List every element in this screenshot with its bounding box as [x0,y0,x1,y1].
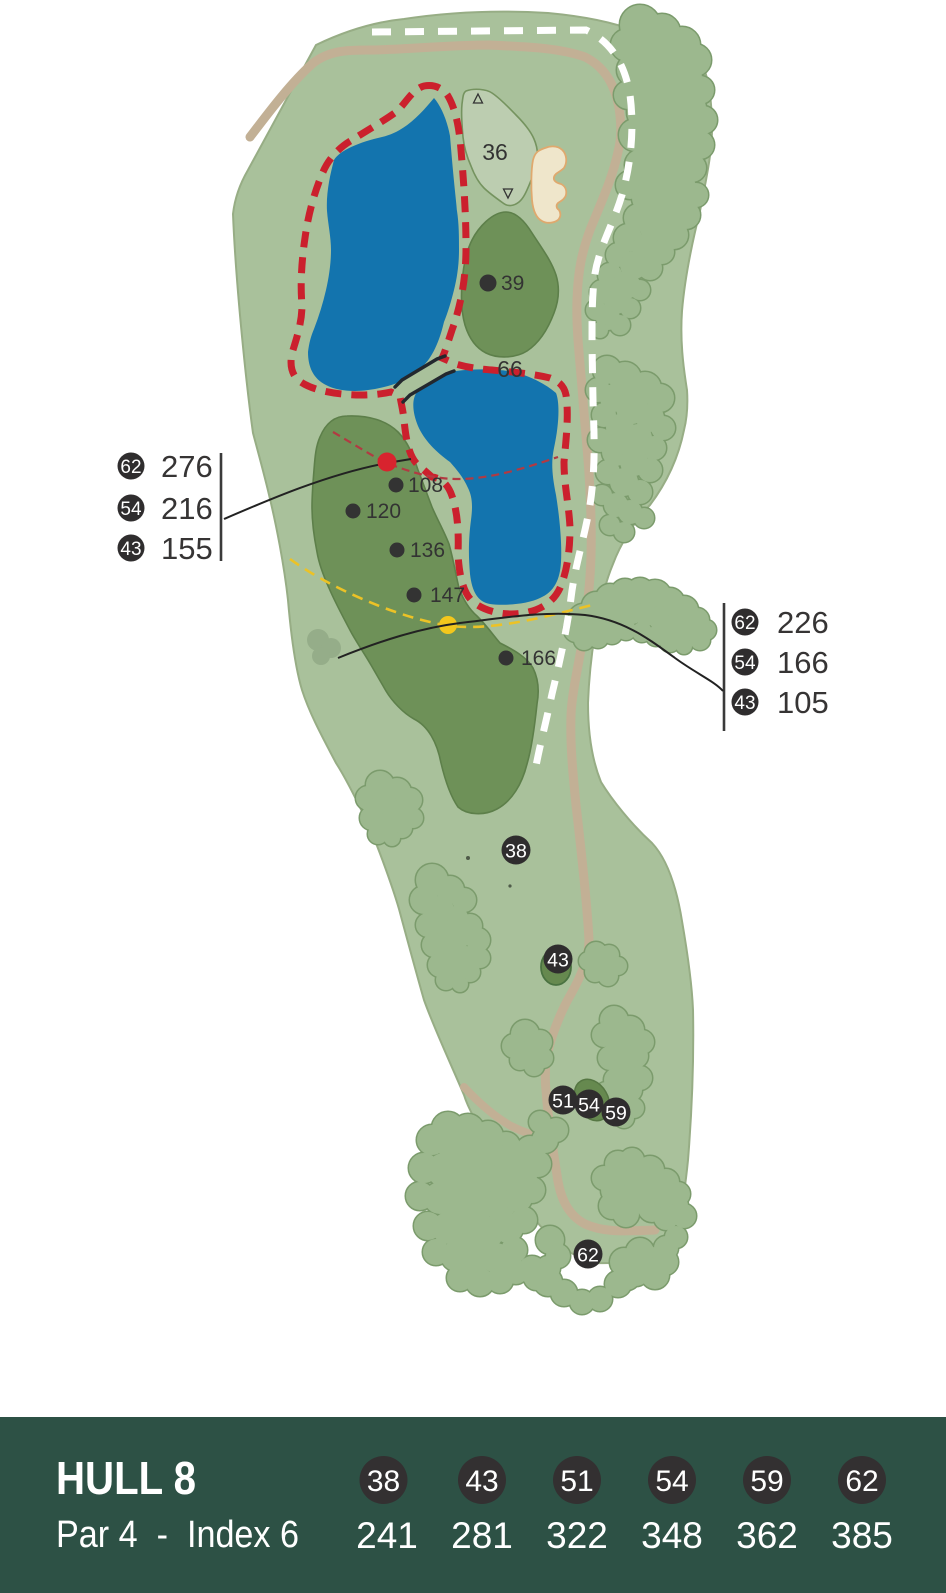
svg-text:66: 66 [497,356,523,382]
svg-text:226: 226 [777,605,829,640]
svg-text:155: 155 [161,531,213,566]
svg-text:120: 120 [366,500,401,523]
svg-text:276: 276 [161,449,213,484]
svg-text:136: 136 [410,539,445,562]
svg-text:62: 62 [577,1245,599,1267]
svg-text:59: 59 [750,1465,783,1498]
svg-text:54: 54 [120,499,142,520]
svg-text:54: 54 [578,1095,600,1117]
svg-text:62: 62 [845,1465,878,1498]
svg-text:348: 348 [641,1515,703,1556]
svg-text:36: 36 [482,139,508,165]
svg-text:216: 216 [161,491,213,526]
svg-text:38: 38 [505,841,527,863]
svg-text:Par 4 - Index 6: Par 4 - Index 6 [56,1514,299,1556]
svg-text:59: 59 [605,1103,627,1125]
svg-text:241: 241 [356,1515,418,1556]
svg-text:43: 43 [734,693,755,714]
svg-text:62: 62 [734,613,755,634]
svg-text:147: 147 [430,584,465,607]
svg-text:54: 54 [734,653,756,674]
svg-text:43: 43 [465,1465,498,1498]
svg-text:281: 281 [451,1515,513,1556]
svg-text:108: 108 [408,474,443,497]
svg-text:51: 51 [560,1465,593,1498]
svg-text:43: 43 [547,950,569,972]
svg-text:105: 105 [777,685,829,720]
svg-text:HULL 8: HULL 8 [56,1452,196,1504]
svg-text:166: 166 [521,647,556,670]
svg-text:62: 62 [120,457,141,478]
svg-text:39: 39 [501,272,524,295]
svg-text:385: 385 [831,1515,893,1556]
svg-text:322: 322 [546,1515,608,1556]
svg-text:51: 51 [552,1091,574,1113]
svg-text:43: 43 [120,539,141,560]
svg-text:38: 38 [367,1465,400,1498]
svg-text:362: 362 [736,1515,798,1556]
svg-text:166: 166 [777,645,829,680]
svg-text:54: 54 [655,1465,688,1498]
